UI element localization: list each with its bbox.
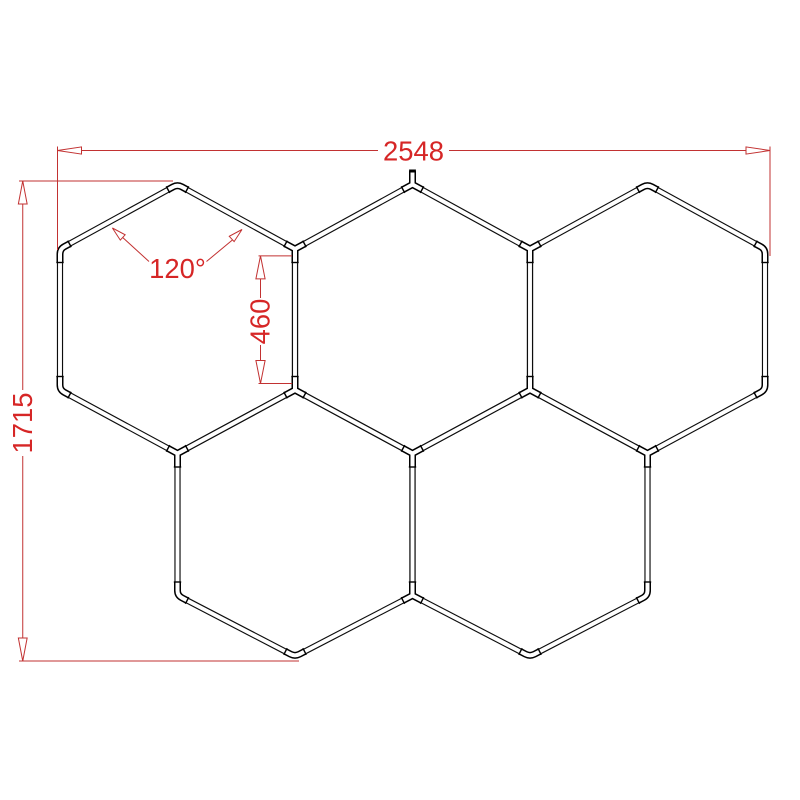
- svg-text:2548: 2548: [383, 136, 444, 167]
- svg-text:1715: 1715: [7, 393, 38, 454]
- svg-text:460: 460: [245, 299, 276, 345]
- svg-text:120°: 120°: [149, 253, 206, 284]
